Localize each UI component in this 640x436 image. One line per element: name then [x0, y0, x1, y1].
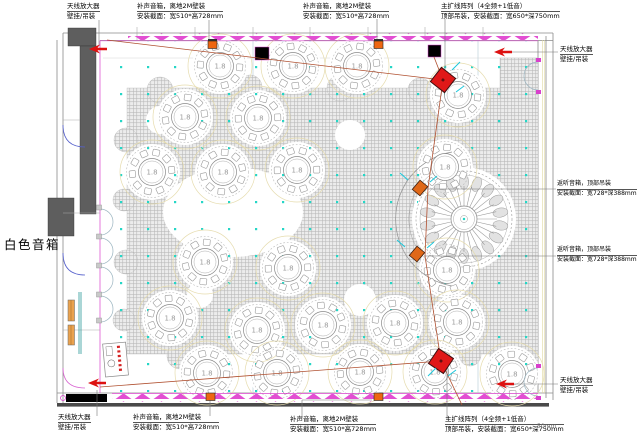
- chair: [309, 66, 316, 74]
- annotation-line2: 安装截面：宽728*深388mm: [557, 256, 637, 264]
- table-diameter-label: 1.8: [291, 167, 302, 175]
- table-diameter-label: 1.8: [282, 265, 293, 273]
- chair: [162, 117, 169, 125]
- bench-seats: [68, 300, 75, 345]
- chair: [360, 349, 368, 356]
- fill-speaker-top-right: [374, 39, 383, 49]
- bottom-outer-wall: [57, 403, 549, 407]
- chair: [412, 363, 420, 371]
- table-diameter-label: 1.8: [146, 169, 157, 177]
- annotation-line2: 安装截面：宽728*深388mm: [557, 190, 637, 198]
- annotation-line1: 返听音箱，顶部吊装: [557, 180, 637, 190]
- annotation-line1: 天线放大器: [67, 2, 100, 12]
- chair: [265, 265, 271, 272]
- chair: [236, 64, 243, 71]
- chair: [272, 322, 280, 330]
- chair: [356, 43, 364, 50]
- chair: [184, 368, 191, 375]
- chair: [198, 350, 206, 358]
- table-diameter-label: 1.8: [506, 371, 517, 379]
- chair: [254, 373, 261, 381]
- chair: [276, 350, 284, 357]
- table-diameter-label: 1.8: [217, 169, 228, 177]
- chair: [300, 317, 307, 325]
- chair: [184, 94, 192, 101]
- chair: [314, 166, 320, 173]
- annotation-line2: 壁挂/吊装: [560, 386, 593, 395]
- table-diameter-label: 1.8: [252, 115, 263, 123]
- table-diameter-label: 1.8: [354, 369, 365, 377]
- annotation-line1: 天线放大器: [560, 376, 593, 386]
- table-diameter-label: 1.8: [317, 322, 328, 330]
- chair: [304, 264, 310, 271]
- chair: [152, 149, 160, 156]
- table-diameter-label: 1.8: [452, 92, 463, 100]
- annotation-line1: 补声音箱，离地2M壁装: [290, 415, 376, 425]
- top-wall-scallop-trim: [128, 34, 538, 41]
- chair: [220, 254, 228, 262]
- chair: [432, 388, 439, 395]
- chair: [443, 144, 450, 151]
- chair: [238, 164, 246, 172]
- left-wall-blocks: [48, 28, 96, 236]
- chair: [200, 278, 207, 285]
- chair: [235, 115, 241, 122]
- chair: [221, 149, 228, 156]
- chair: [372, 316, 379, 324]
- chair: [178, 133, 186, 140]
- floor-plan-canvas: 1.81.81.81.81.81.81.81.81.81.81.81.81.81…: [0, 0, 640, 436]
- chair: [463, 265, 470, 272]
- annotation-fill-bottom-left: 补声音箱，离地2M壁装 安装截面：宽510*高728mm: [133, 413, 219, 432]
- table-diameter-label: 1.8: [214, 63, 225, 71]
- chair: [474, 94, 481, 102]
- foh-mixer-station: [103, 342, 129, 377]
- table-diameter-label: 1.8: [287, 63, 298, 71]
- chair: [456, 338, 464, 345]
- annotation-main-array-top: 主扩线阵列（4全频+1低音） 顶部吊装，安装截面：宽650*深750mm: [441, 2, 560, 21]
- chair: [168, 334, 175, 341]
- annotation-line1: 天线放大器: [58, 413, 91, 423]
- chair: [274, 167, 280, 174]
- annotation-antenna-top-left: 天线放大器 壁挂/吊装: [67, 2, 100, 21]
- chair: [147, 309, 155, 317]
- chair: [317, 302, 324, 309]
- annotation-line2: 安装截面：宽510*高728mm: [290, 425, 376, 434]
- table-diameter-label: 1.8: [441, 267, 452, 275]
- chair: [394, 339, 402, 346]
- chair: [200, 172, 208, 180]
- chair: [203, 239, 210, 246]
- chair: [221, 81, 229, 89]
- white-speaker-side-label: 白色音箱: [4, 234, 60, 253]
- table-diameter-label: 1.8: [439, 164, 450, 172]
- annotation-line1: 补声音箱，离地2M壁装: [137, 2, 223, 12]
- chair: [255, 307, 262, 314]
- annotation-fill-bottom-mid: 补声音箱，离地2M壁装 安装截面：宽510*高728mm: [290, 415, 376, 434]
- chair: [458, 111, 466, 118]
- fill-speaker-bottom-left: [206, 393, 215, 401]
- chair: [218, 188, 225, 195]
- bottom-wall-scallop-trim: [112, 394, 538, 402]
- annotation-antenna-right-top: 天线放大器 壁挂/吊装: [560, 45, 593, 64]
- chair: [197, 61, 204, 68]
- chair: [144, 188, 152, 195]
- chair: [461, 159, 468, 167]
- chair: [373, 59, 380, 67]
- annotation-monitor-2: 返听音箱，顶部吊装 安装截面：宽728*深388mm: [557, 246, 637, 264]
- chair: [450, 373, 458, 381]
- chair: [274, 114, 280, 121]
- fill-speaker-top-left: [208, 39, 217, 49]
- chair: [376, 366, 383, 373]
- chair: [451, 299, 459, 306]
- scale-note: 50mm: [537, 423, 556, 430]
- annotation-line2: 安装截面：宽510*高728mm: [303, 12, 389, 21]
- annotation-line1: 补声音箱，离地2M壁装: [303, 2, 389, 12]
- chair: [337, 370, 344, 377]
- annotation-line1: 补声音箱，离地2M壁装: [133, 413, 219, 423]
- annotation-line2: 安装截面：宽510*高728mm: [133, 423, 219, 432]
- chair: [321, 341, 328, 348]
- chair: [388, 300, 396, 307]
- bottom-left-equipment-bar: [66, 394, 107, 402]
- table-diameter-label: 1.8: [199, 259, 210, 267]
- chair: [287, 43, 295, 50]
- chair: [182, 262, 190, 270]
- chair: [508, 351, 515, 357]
- chair: [201, 110, 208, 118]
- chair: [339, 325, 346, 333]
- table-diameter-label: 1.8: [389, 320, 400, 328]
- table-diameter-label: 1.8: [251, 327, 262, 335]
- chair: [185, 319, 193, 327]
- chair: [352, 388, 360, 395]
- annotation-fill-top-left: 补声音箱，离地2M壁装 安装截面：宽510*高728mm: [137, 2, 223, 21]
- annotation-antenna-bottom-left: 天线放大器 壁挂/吊装: [58, 413, 91, 432]
- annotation-fill-top-right: 补声音箱，离地2M壁装 安装截面：宽510*高728mm: [303, 2, 389, 21]
- annotation-line2: 顶部吊装，安装截面：宽650*深750mm: [441, 12, 560, 21]
- chair: [292, 82, 300, 89]
- chair: [422, 167, 429, 175]
- fill-speaker-bottom-right: [374, 393, 383, 401]
- annotation-line1: 天线放大器: [560, 45, 593, 55]
- table-diameter-label: 1.8: [164, 315, 175, 323]
- annotation-line1: 返听音箱，顶部吊装: [557, 246, 637, 256]
- table-diameter-label: 1.8: [201, 370, 212, 378]
- chair: [350, 82, 358, 89]
- annotation-monitor-1: 返听音箱，顶部吊装 安装截面：宽728*深388mm: [557, 180, 637, 198]
- annotation-line1: 主扩线阵列（4全频+1低音）: [441, 2, 560, 12]
- annotation-line2: 安装截面：宽510*高728mm: [137, 12, 223, 21]
- chair: [411, 323, 418, 331]
- annotation-line2: 壁挂/吊装: [58, 423, 91, 432]
- chair: [165, 295, 172, 302]
- chair: [448, 247, 456, 255]
- annotation-line2: 壁挂/吊装: [560, 55, 593, 64]
- chair: [168, 166, 175, 173]
- chair: [129, 170, 136, 177]
- chair: [334, 65, 341, 73]
- annotation-line2: 壁挂/吊装: [67, 12, 100, 21]
- chair: [473, 322, 480, 330]
- banquet-hall-audio-plan: 1.81.81.81.81.81.81.81.81.81.81.81.81.81…: [0, 0, 640, 436]
- annotation-antenna-right-bottom: 天线放大器 壁挂/吊装: [560, 376, 593, 395]
- chair: [438, 285, 446, 293]
- table-diameter-label: 1.8: [179, 114, 190, 122]
- chair: [234, 330, 242, 338]
- table-diameter-label: 1.8: [451, 319, 462, 327]
- glass-partition: [79, 292, 81, 354]
